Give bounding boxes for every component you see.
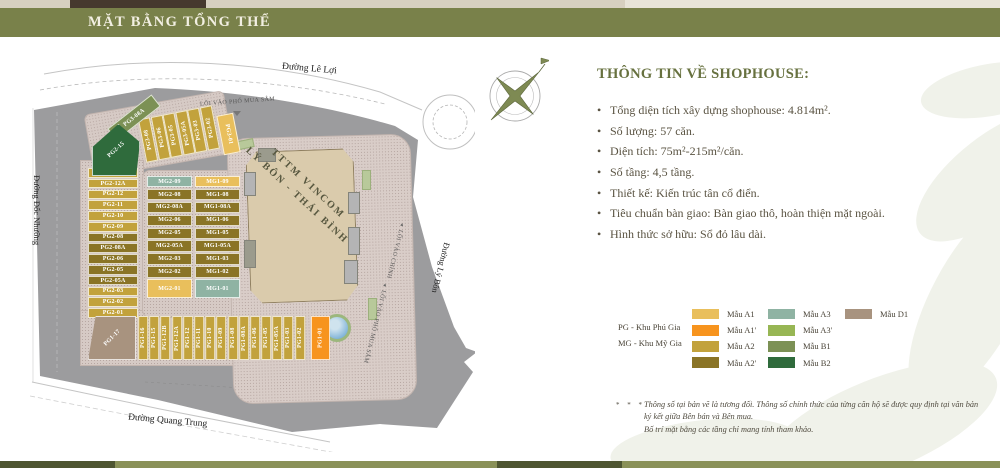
site-plan-map: TTTM VINCOM LÝ BÔN - THÁI BÌNH PG2-12BPG… [30,52,475,452]
info-bullet: Tổng diện tích xây dựng shophouse: 4.814… [597,103,997,117]
legend-swatch [768,325,795,336]
green-strip [362,170,371,190]
legend-label: Mẫu A1' [727,325,756,335]
legend-label: Mẫu D1 [880,309,908,319]
legend-column-1: Mẫu A1 Mẫu A1' Mẫu A2 Mẫu A2' [692,306,756,371]
footer-bar-segment [115,461,497,468]
legend-swatch [692,325,719,336]
lot: MG2-06 [147,215,192,226]
lot-label: PG2-15 [106,141,125,159]
lot: MG2-08A [147,202,192,213]
lot: MG1-09 [195,176,240,187]
legend-swatch [768,357,795,368]
lot: PG1-01 [311,316,330,360]
lot: MG2-02 [147,266,192,277]
legend-swatch [845,309,872,320]
lot: PG2-11 [88,200,138,210]
lot: PG1-11 [194,316,204,360]
lot: MG1-08 [195,189,240,200]
footnote-line: Thông số tại bản vẽ là tương đối. Thông … [644,399,989,411]
legend-swatch [768,309,795,320]
legend-label: Mẫu A2' [727,358,756,368]
info-bullet: Hình thức sở hữu: Sổ đỏ lâu dài. [597,227,997,241]
lot: MG1-05 [195,228,240,239]
lot: MG1-01 [195,279,240,298]
building-annex [344,260,358,284]
lot: PG1-15 [149,316,159,360]
lot: PG2-03 [88,287,138,297]
pg2-lot-column: PG2-12BPG2-12APG2-12PG2-11PG2-10PG2-09PG… [88,168,138,319]
info-bullet: Số lượng: 57 căn. [597,124,997,138]
footnote-line: ký kết giữa Bên bán và Bên mua. [644,411,989,423]
lot-label: PG1-17 [103,329,122,348]
mg1-lot-column: MG1-09MG1-08MG1-08AMG1-06MG1-05MG1-05AMG… [195,176,240,298]
info-bullet: Diện tích: 75m²-215m²/căn. [597,144,997,158]
building-annex [348,192,360,214]
lot: PG2-08A [88,243,138,253]
lot: PG1-12 [183,316,193,360]
building-annex [244,172,256,196]
info-bullet-list: Tổng diện tích xây dựng shophouse: 4.814… [597,103,997,248]
legend-item: Mẫu B1 [768,338,832,354]
lot: PG2-10 [88,211,138,221]
mg2-lot-column: MG2-09MG2-08MG2-08AMG2-06MG2-05MG2-05AMG… [147,176,192,298]
lot: PG1-12B [160,316,170,360]
legend-item: Mẫu A3 [768,306,832,322]
legend-item: Mẫu A1' [692,322,756,338]
lot: PG2-12A [88,179,138,189]
lot: MG1-05A [195,240,240,251]
legend-swatch [768,341,795,352]
legend-label: Mẫu A3 [803,309,831,319]
legend-column-2: Mẫu A3 Mẫu A3' Mẫu B1 Mẫu B2 [768,306,832,371]
lot: PG1-02 [295,316,305,360]
info-bullet: Thiết kế: Kiến trúc tân cổ điển. [597,186,997,200]
footer-bar-segment [497,461,622,468]
lot: MG1-06 [195,215,240,226]
lot: PG2-05 [88,265,138,275]
lot: MG2-05A [147,240,192,251]
legend-label: Mẫu B2 [803,358,831,368]
lot: PG1-08 [228,316,238,360]
lot: MG2-05 [147,228,192,239]
footer-bar-segment [0,461,115,468]
pg1-lot-row: PG1-16PG1-15PG1-12BPG1-12APG1-12PG1-11PG… [138,316,305,360]
info-bullet: Tiêu chuẩn bàn giao: Bàn giao thô, hoàn … [597,206,997,220]
footnote-line: Bố trí mặt bằng các tầng chỉ mang tính t… [644,424,989,436]
top-strip-segment [206,0,625,8]
legend-label: Mẫu A3' [803,325,832,335]
footnote-text: Thông số tại bản vẽ là tương đối. Thông … [644,399,989,436]
header-bar: MẶT BẰNG TỔNG THỂ [0,8,1000,37]
lot: PG1-10 [205,316,215,360]
lot: MG1-08A [195,202,240,213]
entrance-arrow-icon [233,111,241,116]
lot: PG2-12 [88,190,138,200]
building-annex [244,240,256,268]
lot: PG1-05A [272,316,282,360]
lot: PG1-09 [216,316,226,360]
page-title: MẶT BẰNG TỔNG THỂ [88,8,271,37]
info-panel-title: THÔNG TIN VỀ SHOPHOUSE: [597,66,809,83]
lot: MG2-09 [147,176,192,187]
legend-item: Mẫu D1 [845,306,908,322]
lot: PG2-09 [88,222,138,232]
legend-swatch [692,341,719,352]
lot: PG2-08 [88,233,138,243]
legend-column-3: Mẫu D1 [845,306,908,322]
compass-icon [483,54,549,132]
legend-item: Mẫu A2' [692,355,756,371]
lot: PG2-06 [88,254,138,264]
legend-item: Mẫu A1 [692,306,756,322]
top-strip-segment [625,0,1000,8]
lot: MG1-03 [195,253,240,264]
legend-item: Mẫu A2 [692,338,756,354]
lot: PG1-06 [250,316,260,360]
legend-label: Mẫu A1 [727,309,755,319]
legend-swatch [692,357,719,368]
lot: PG2-02 [88,297,138,307]
legend-label: Mẫu B1 [803,341,831,351]
legend-item: Mẫu B2 [768,355,832,371]
legend-item: Mẫu A3' [768,322,832,338]
lot: PG1-03 [283,316,293,360]
lot: PG2-05A [88,276,138,286]
legend-swatch [692,309,719,320]
lot: MG2-03 [147,253,192,264]
info-bullet: Số tầng: 4,5 tầng. [597,165,997,179]
top-strip-segment [70,0,206,8]
lot: PG1-12A [172,316,182,360]
legend-zone-mg: MG - Khu Mỹ Gia [618,338,682,348]
lot: PG1-05 [261,316,271,360]
road-label-doc-nhuong: Đường Đốc Nhưỡng [32,175,42,245]
page: MẶT BẰNG TỔNG THỂ [0,0,1000,468]
lot: MG1-02 [195,266,240,277]
lot: PG1-16 [138,316,148,360]
top-strip-segment [0,0,70,8]
lot: MG2-08 [147,189,192,200]
lot: PG1-17 [88,316,136,360]
footnote-marker: * * * [616,401,645,409]
lot: PG1-08A [239,316,249,360]
footer-bar-segment [622,461,1000,468]
lot: MG2-01 [147,279,192,298]
legend-label: Mẫu A2 [727,341,755,351]
legend-zone-pg: PG - Khu Phú Gia [618,322,680,332]
